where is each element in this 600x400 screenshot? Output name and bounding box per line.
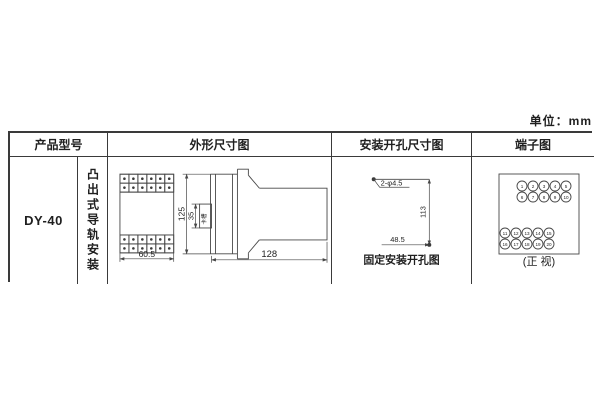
svg-text:13: 13 [524, 231, 530, 236]
front-view-top-terminal-strip [120, 174, 174, 192]
svg-text:9: 9 [554, 195, 557, 200]
svg-text:16: 16 [502, 242, 508, 247]
svg-text:15: 15 [546, 231, 552, 236]
svg-text:1: 1 [521, 184, 524, 189]
install-drawing-cell: 2-φ4.5 113 48.5 固定安装开孔图 [332, 157, 472, 284]
holes-spec-label: 2-φ4.5 [381, 179, 403, 188]
spec-table: 产品型号 外形尺寸图 安装开孔尺寸图 端子图 DY-40 凸出式导轨安装 60.… [8, 131, 592, 282]
hole-span-height-label: 113 [418, 206, 427, 218]
outline-drawing: 60.5 125 35 卡槽 [108, 157, 331, 284]
mounting-type-vertical-text: 凸出式导轨安装 [78, 168, 108, 273]
svg-text:14: 14 [535, 231, 541, 236]
svg-text:5: 5 [565, 184, 568, 189]
terminal-diagram: 12345678910 11121314151617181920 (正 视) [472, 157, 594, 284]
svg-text:17: 17 [513, 242, 519, 247]
rail-slot-label: 卡槽 [200, 213, 208, 224]
svg-text:20: 20 [546, 242, 552, 247]
unit-label: 单位：mm [530, 112, 592, 129]
install-caption: 固定安装开孔图 [363, 253, 439, 267]
header-install-holes: 安装开孔尺寸图 [332, 133, 472, 157]
dim-width-label: 60.5 [139, 249, 156, 259]
svg-text:6: 6 [521, 195, 524, 200]
side-view [211, 169, 327, 259]
header-product-model: 产品型号 [10, 133, 108, 157]
install-hole-drawing: 2-φ4.5 113 48.5 固定安装开孔图 [332, 157, 471, 284]
svg-text:12: 12 [513, 231, 519, 236]
svg-text:2: 2 [532, 184, 535, 189]
terminal-drawing-cell: 12345678910 11121314151617181920 (正 视) [472, 157, 594, 284]
svg-text:7: 7 [532, 195, 535, 200]
svg-text:10: 10 [563, 195, 569, 200]
terminal-caption: (正 视) [523, 254, 555, 268]
terminal-top-group: 12345678910 [517, 181, 571, 202]
header-outline-dimensions: 外形尺寸图 [108, 133, 332, 157]
dim-depth-label: 128 [261, 249, 277, 260]
svg-text:4: 4 [554, 184, 557, 189]
dim-slot-height-label: 35 [187, 212, 196, 220]
outline-drawing-cell: 60.5 125 35 卡槽 [108, 157, 332, 284]
svg-text:8: 8 [543, 195, 546, 200]
terminal-bottom-group: 11121314151617181920 [500, 228, 554, 249]
dim-height-label: 125 [177, 207, 187, 221]
svg-text:18: 18 [524, 242, 530, 247]
header-terminal-diagram: 端子图 [472, 133, 594, 157]
product-model-value: DY-40 [10, 157, 78, 284]
svg-text:11: 11 [503, 231, 508, 236]
hole-span-width-label: 48.5 [390, 235, 404, 244]
svg-text:3: 3 [543, 184, 546, 189]
svg-text:19: 19 [535, 242, 541, 247]
mount-hole-bottom-right [427, 243, 431, 247]
mounting-type-cell: 凸出式导轨安装 [78, 157, 108, 284]
